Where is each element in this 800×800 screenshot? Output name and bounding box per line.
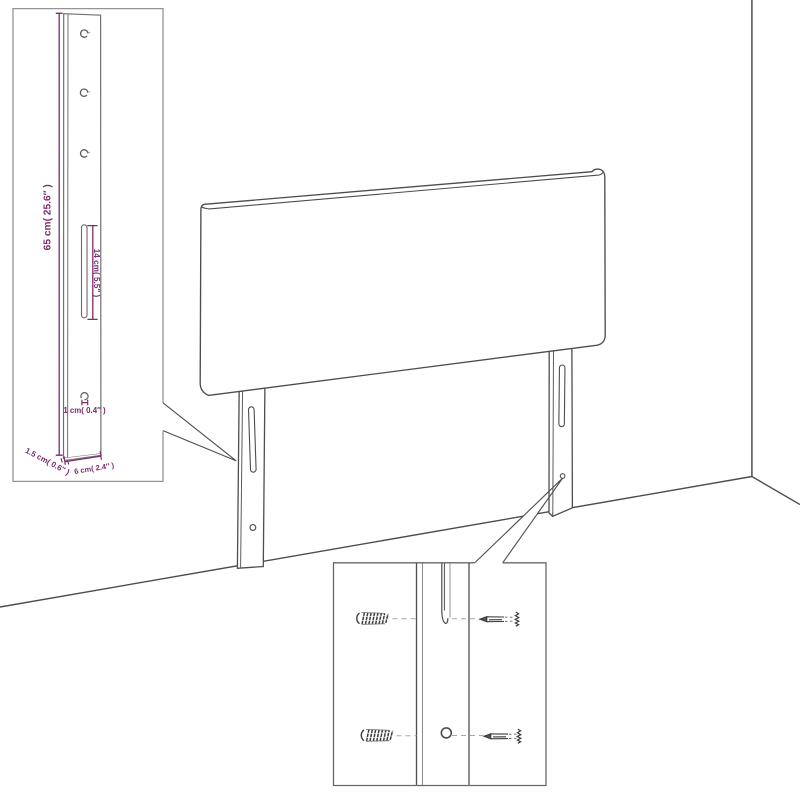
svg-text:14 cm( 5.5″ ): 14 cm( 5.5″ ) [92,249,101,298]
svg-text:1 cm( 0.4″ ): 1 cm( 0.4″ ) [63,406,106,415]
svg-text:65 cm( 25.6″ ): 65 cm( 25.6″ ) [43,184,54,250]
